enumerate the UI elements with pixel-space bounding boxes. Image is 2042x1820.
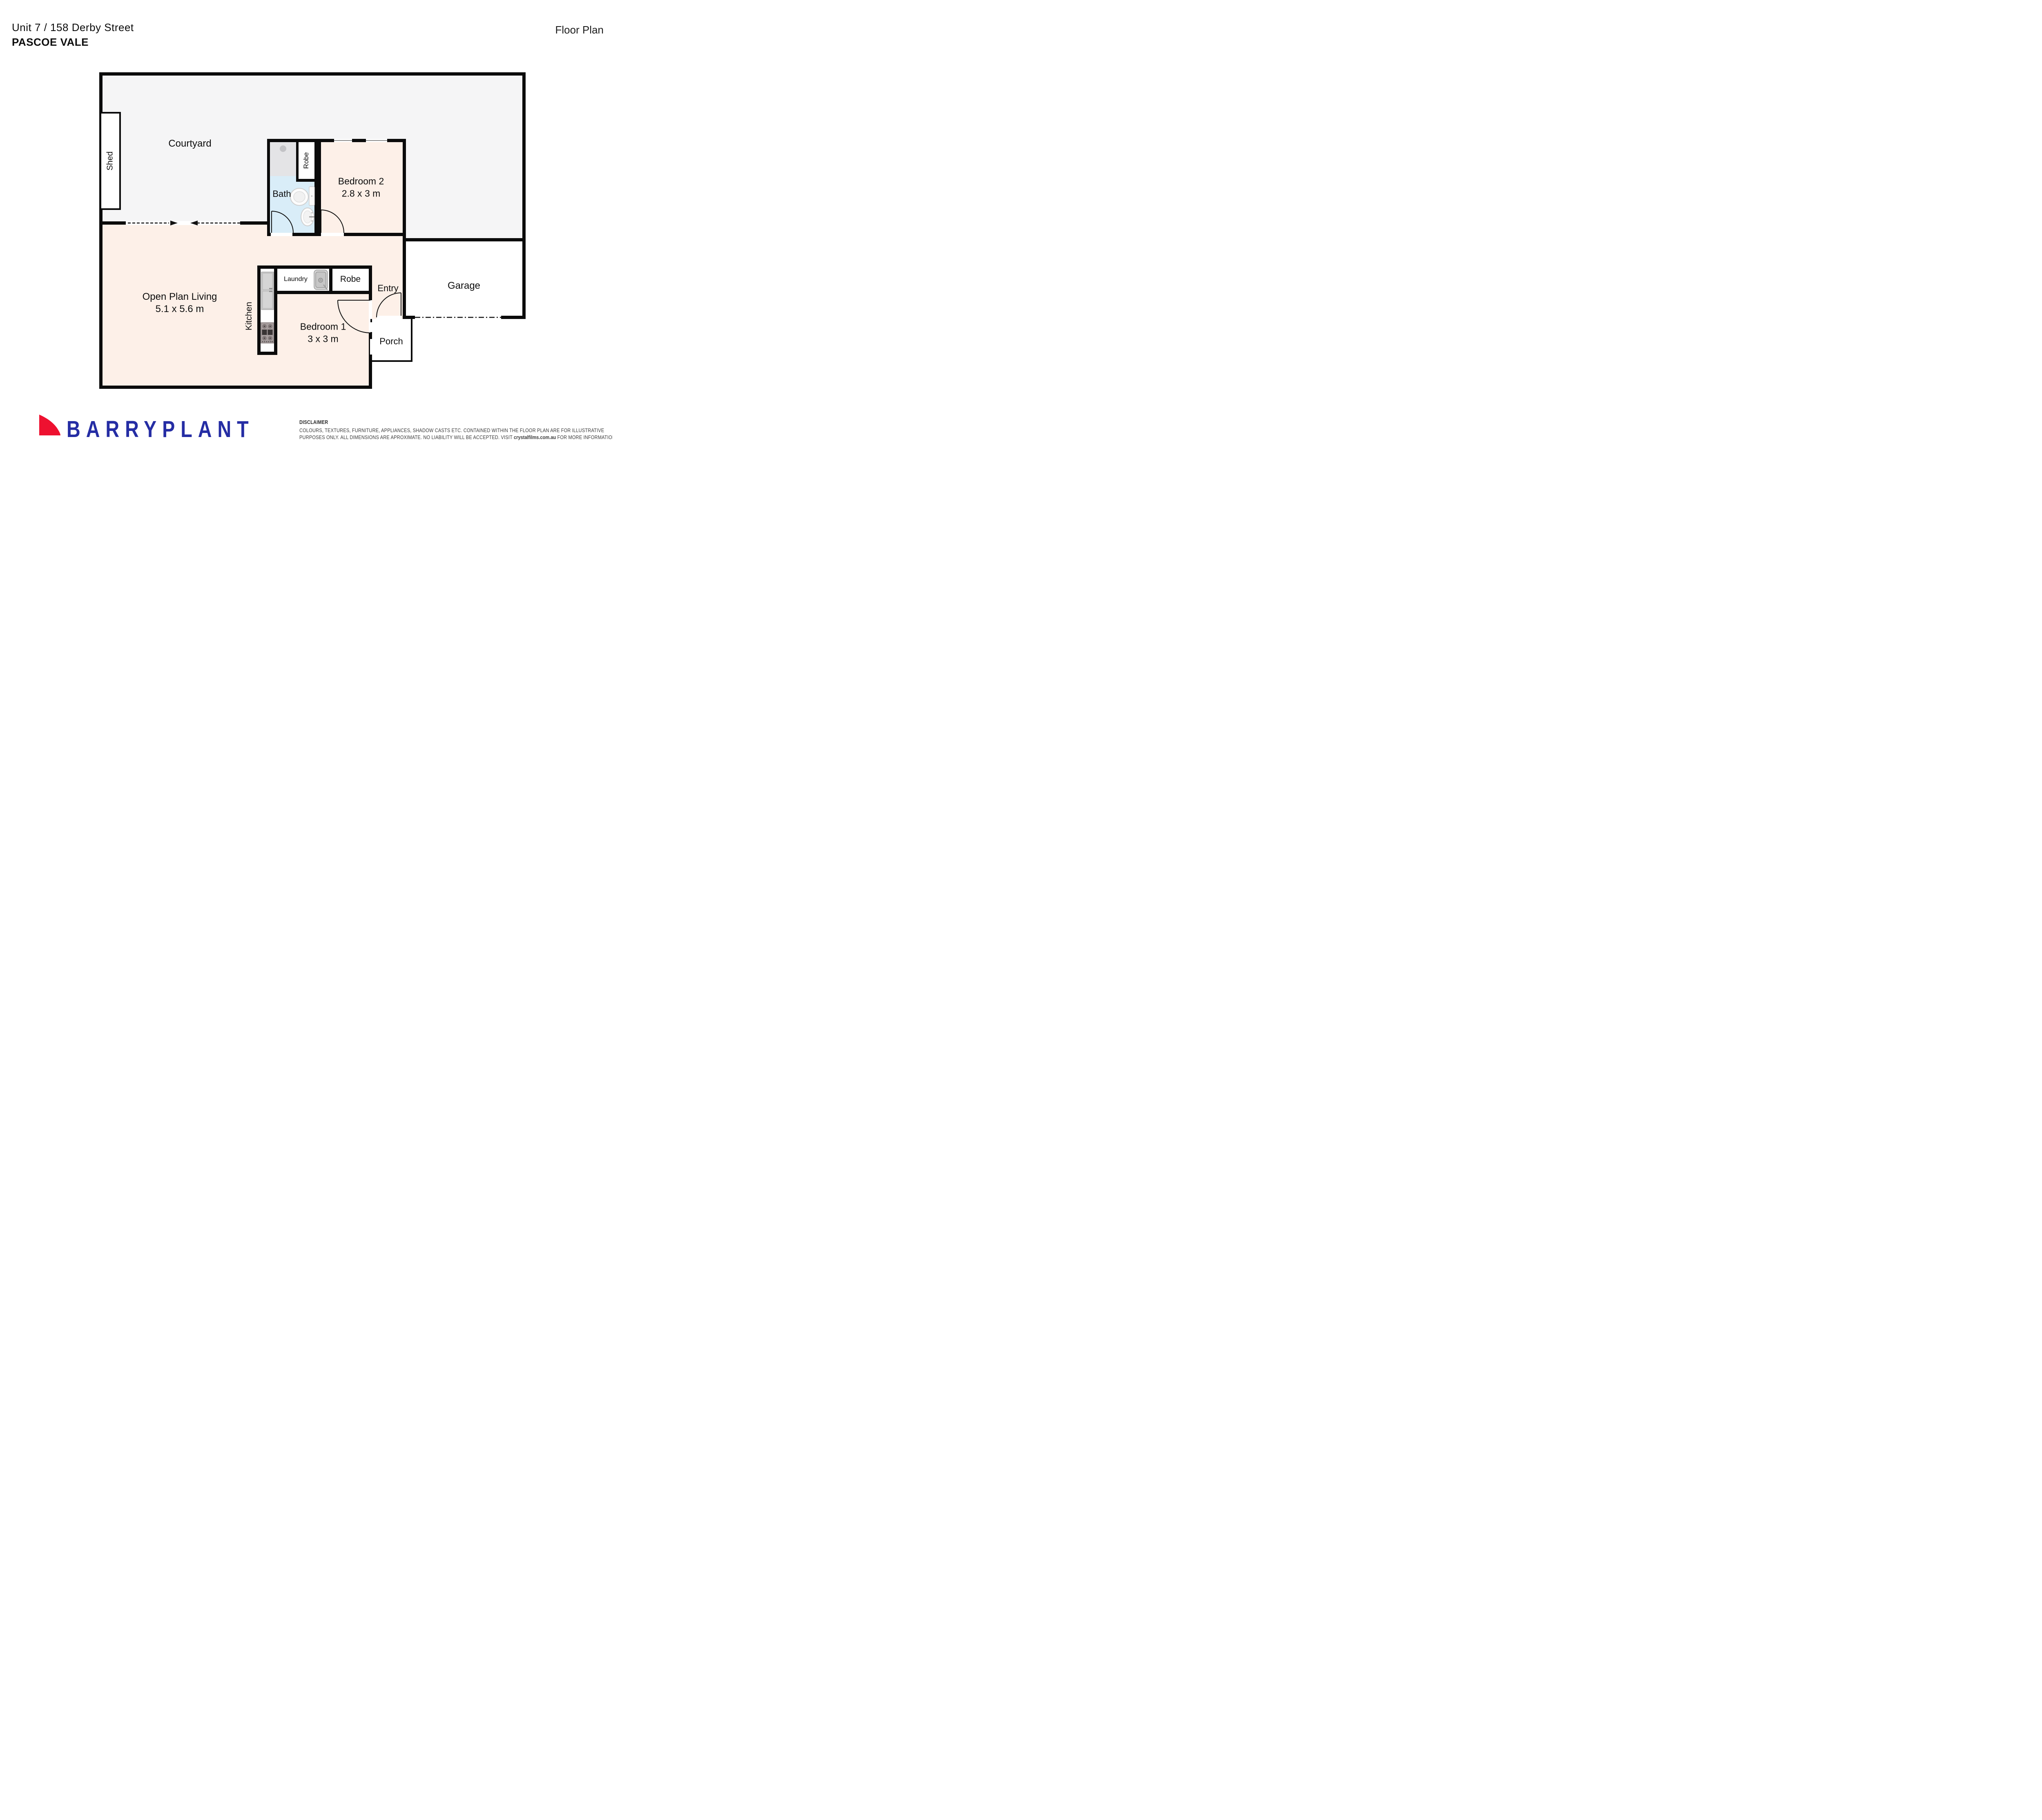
living-dims: 5.1 x 5.6 m <box>156 303 204 315</box>
disclaimer-link: crystalfilms.com.au <box>514 434 556 440</box>
bedroom2-room <box>321 142 403 233</box>
bath-robe-label: Robe <box>302 152 310 169</box>
shower-icon <box>270 142 296 176</box>
front-door-opening <box>377 316 401 319</box>
bedroom2-door-opening <box>321 233 344 236</box>
disclaimer-line-2-post: FOR MORE INFORMATION <box>556 434 613 440</box>
disclaimer-block: DISCLAIMER COLOURS, TEXTURES, FURNITURE,… <box>299 419 570 441</box>
bedroom2-label: Bedroom 2 <box>338 176 384 187</box>
disclaimer-line-1: COLOURS, TEXTURES, FURNITURE, APPLIANCES… <box>299 427 570 434</box>
bath-robe-wall <box>296 142 299 182</box>
outer-wall-right <box>522 72 526 319</box>
brand-logo-text: BARRYPLANT <box>67 416 254 443</box>
porch-wall-bottom <box>370 360 412 362</box>
bath-label: Bath <box>272 189 291 199</box>
entry-label: Entry <box>377 283 398 294</box>
shed-label: Shed <box>106 152 115 171</box>
sliding-door-opening <box>126 221 240 225</box>
living-bedroom1-floor <box>103 225 372 386</box>
porch-wall-right <box>411 319 412 362</box>
porch-label: Porch <box>379 336 403 347</box>
disclaimer-line-2: PURPOSES ONLY. ALL DIMENSIONS ARE APROXI… <box>299 434 570 441</box>
garage-door-opening <box>415 315 501 320</box>
disclaimer-title: DISCLAIMER <box>299 419 570 425</box>
bedroom1-dims: 3 x 3 m <box>308 334 338 345</box>
address-line-2: PASCOE VALE <box>12 36 89 49</box>
entry-garage-wall <box>403 236 406 319</box>
outer-wall-top <box>99 72 526 76</box>
courtyard-area-upper <box>267 76 406 139</box>
bath-robe-bottom-wall <box>296 179 318 182</box>
floor-plan-page: Unit 7 / 158 Derby Street PASCOE VALE Fl… <box>0 0 613 455</box>
porch-opening-1 <box>370 322 372 332</box>
disclaimer-line-2-pre: PURPOSES ONLY. ALL DIMENSIONS ARE APROXI… <box>299 434 514 440</box>
laundry-label: Laundry <box>284 276 308 283</box>
living-label: Open Plan Living <box>143 291 217 303</box>
courtyard-label: Courtyard <box>168 138 211 149</box>
page-title: Floor Plan <box>555 24 604 36</box>
brand-logo-mark-icon <box>39 414 62 436</box>
garage-label: Garage <box>448 280 480 292</box>
porch-opening-2 <box>370 339 372 355</box>
bedroom2-window-line-1 <box>334 140 352 141</box>
kitchen-label: Kitchen <box>244 302 254 330</box>
address-line-1: Unit 7 / 158 Derby Street <box>12 21 134 34</box>
garage-top-wall <box>403 238 526 241</box>
bath-door-opening <box>271 233 292 236</box>
bedroom2-window-line-2 <box>366 140 387 141</box>
bedroom2-dims: 2.8 x 3 m <box>342 188 381 199</box>
courtyard-area-right <box>406 76 522 238</box>
outer-wall-bottom <box>99 386 372 389</box>
hall-robe-label: Robe <box>340 274 361 284</box>
kitchen-room <box>261 269 274 352</box>
bedroom1-label: Bedroom 1 <box>300 321 346 332</box>
